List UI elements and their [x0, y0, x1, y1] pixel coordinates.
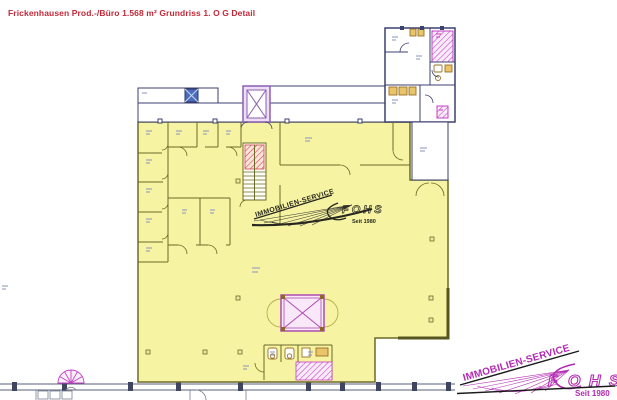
shaft-hatch [437, 106, 448, 118]
spiral-stair-icon [58, 370, 84, 390]
logo-letter-s: S [609, 373, 617, 390]
canopy [138, 88, 218, 103]
ground-band [0, 382, 455, 400]
staircase-icon [240, 143, 266, 207]
elevator-shaft-icon [241, 86, 272, 129]
rental-area-outline [138, 122, 448, 382]
floorplan-page: Frickenhausen Prod.-/Büro 1.568 m² Grund… [0, 0, 617, 400]
logo-letter-f: F [548, 373, 559, 390]
watermark-brand-text: FOHS [342, 204, 385, 216]
logo-tagline-text: Seit 1980 [575, 389, 610, 398]
stairwell-hatch [432, 31, 453, 62]
floor-plan-drawing: IMMOBILIEN-SERVICE FOHS Seit 1980 IMMOBI… [0, 0, 617, 400]
fohs-logo: IMMOBILIEN-SERVICE F O H S Seit 1980 [457, 343, 617, 398]
watermark-tagline-text: Seit 1980 [352, 219, 376, 225]
stair-hatch [296, 362, 332, 380]
rental-area [138, 122, 448, 382]
